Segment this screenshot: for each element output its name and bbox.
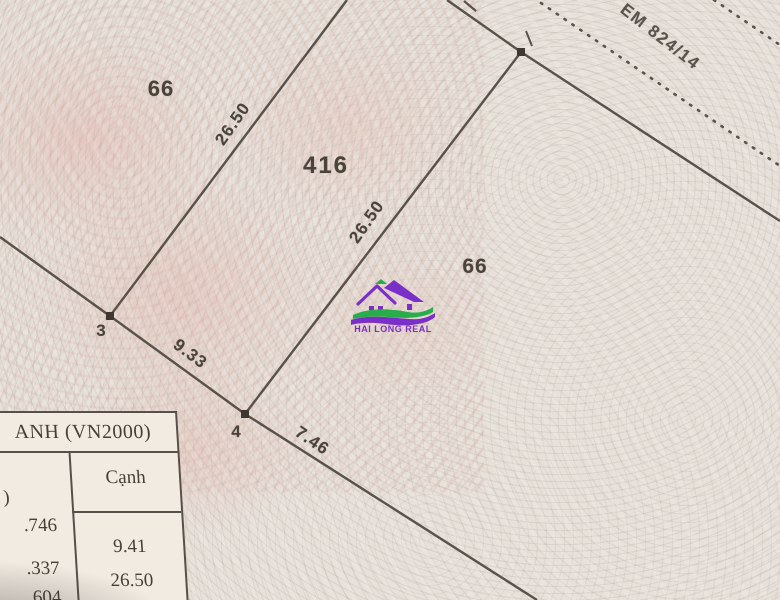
- table-title: ANH (VN2000): [0, 413, 178, 453]
- cadastral-map-photo: 66 416 66 26.50 26.50 9.33 7.46 3 4 EM 8…: [0, 0, 780, 600]
- zone-label-left: 66: [148, 76, 174, 102]
- alley-dotted-line-upper: [714, 0, 780, 45]
- parcel-number-label: 416: [303, 152, 349, 180]
- table-row-line: [72, 511, 181, 513]
- parcel-edge-se: [245, 52, 521, 414]
- boundary-line-west: [0, 237, 110, 316]
- clipped-mark-top-edge: [464, 1, 476, 11]
- zone-label-right: 66: [462, 255, 487, 279]
- vertex-label-3: 3: [96, 321, 105, 341]
- house-logo-icon: HAI LONG REAL: [348, 275, 438, 335]
- boundary-line-south: [245, 414, 537, 600]
- table-body: Cạnh ) .746 .337 .604 9.41 26.50: [0, 453, 187, 600]
- vertex-label-4: 4: [231, 422, 240, 442]
- edge-length-value: 26.50: [78, 570, 186, 592]
- coordinate-value: .604: [0, 587, 62, 600]
- coordinate-value: .337: [0, 558, 60, 580]
- hai-long-real-watermark: HAI LONG REAL: [348, 275, 438, 335]
- vertex-marker-3: [106, 312, 114, 320]
- logo-brand-text: HAI LONG REAL: [354, 324, 432, 334]
- point-tick-mark: [526, 31, 532, 46]
- vertex-marker-east: [517, 48, 525, 56]
- parcel-edge-ne: [447, 0, 521, 52]
- clipped-column-header-fragment: ): [3, 487, 11, 509]
- coordinate-value: .746: [0, 515, 58, 537]
- coordinate-table: ANH (VN2000) Cạnh ) .746 .337 .604 9.41 …: [0, 411, 189, 600]
- vertex-marker-4: [241, 410, 249, 418]
- edge-length-value: 9.41: [76, 536, 184, 558]
- column-header-canh: Cạnh: [71, 467, 179, 489]
- parcel-edge-sw: [110, 316, 245, 414]
